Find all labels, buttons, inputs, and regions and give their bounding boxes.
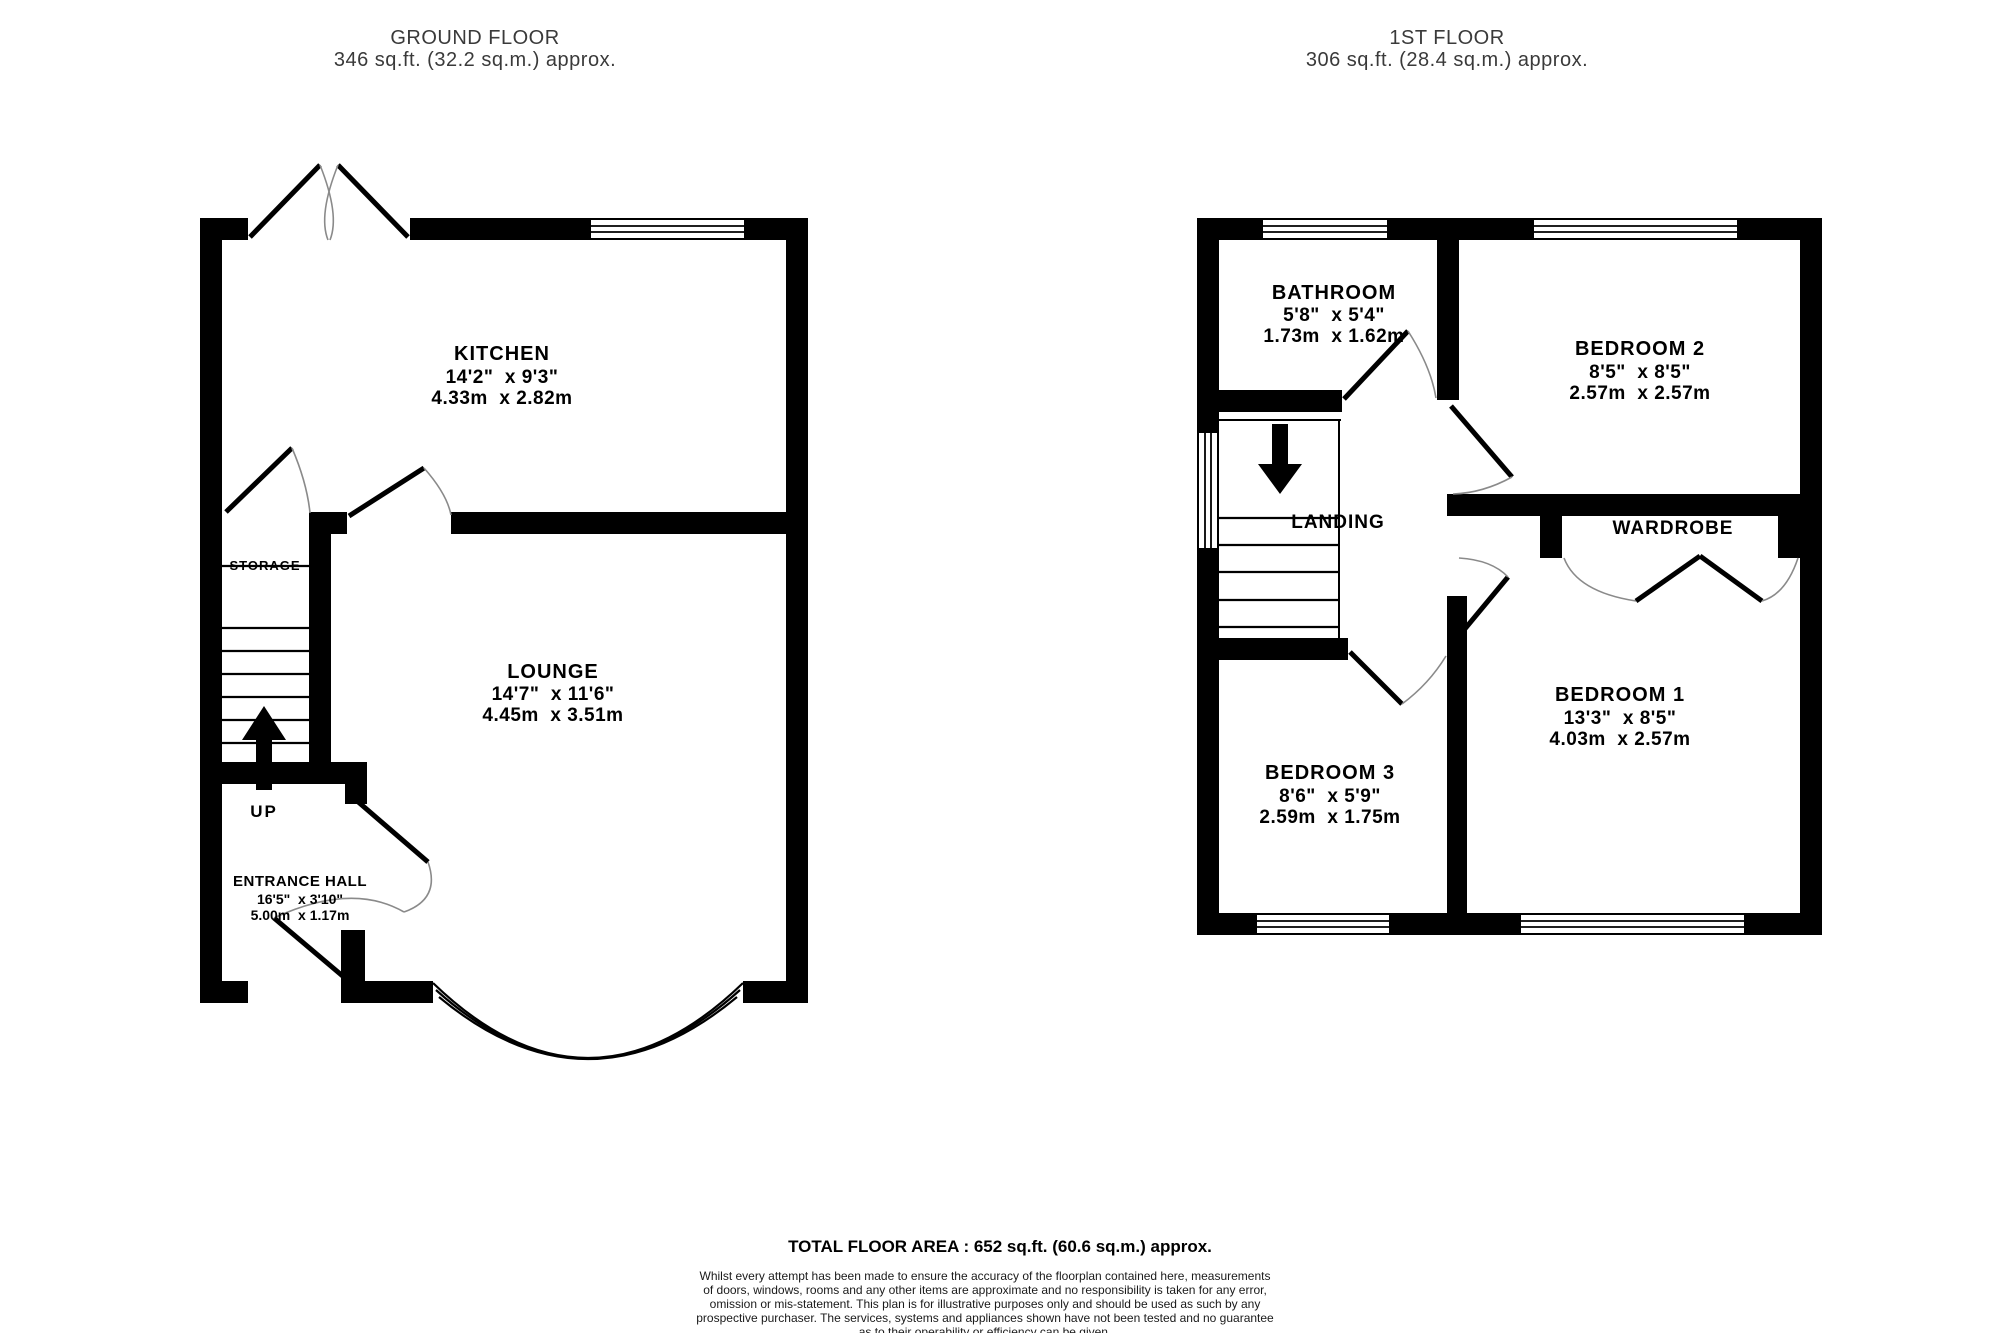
- bedroom3-metric: 2.59m x 1.75m: [1259, 807, 1400, 828]
- bedroom2-window: [1533, 219, 1738, 239]
- lounge-door: [356, 800, 431, 912]
- disclaimer-line-3: omission or mis-statement. This plan is …: [710, 1297, 1261, 1311]
- lounge-name: LOUNGE: [507, 661, 599, 683]
- bedroom3-name: BEDROOM 3: [1265, 762, 1395, 784]
- storage-label: STORAGE: [229, 558, 300, 573]
- kitchen-name: KITCHEN: [454, 343, 550, 365]
- bedroom3-label: BEDROOM 3 8'6" x 5'9" 2.59m x 1.75m: [1259, 762, 1400, 828]
- disclaimer-line-5: as to their operability or efficiency ca…: [859, 1325, 1112, 1333]
- ground-floor-area: 346 sq.ft. (32.2 sq.m.) approx.: [334, 49, 616, 71]
- disclaimer-line-4: prospective purchaser. The services, sys…: [696, 1311, 1274, 1325]
- kitchen-imperial: 14'2" x 9'3": [446, 367, 559, 388]
- bedroom1-metric: 4.03m x 2.57m: [1549, 729, 1690, 750]
- bedroom2-name: BEDROOM 2: [1575, 338, 1705, 360]
- disclaimer-line-1: Whilst every attempt has been made to en…: [700, 1269, 1271, 1283]
- bedroom3-imperial: 8'6" x 5'9": [1279, 786, 1381, 807]
- wardrobe-doors: [1564, 556, 1798, 601]
- hall-kitchen-door: [226, 448, 310, 513]
- first-floor-header: 1ST FLOOR 306 sq.ft. (28.4 sq.m.) approx…: [1306, 27, 1588, 71]
- kitchen-metric: 4.33m x 2.82m: [431, 388, 572, 409]
- bay-window: [433, 983, 743, 1059]
- ground-floor-header: GROUND FLOOR 346 sq.ft. (32.2 sq.m.) app…: [334, 27, 616, 71]
- lounge-label: LOUNGE 14'7" x 11'6" 4.45m x 3.51m: [482, 661, 623, 726]
- lounge-metric: 4.45m x 3.51m: [482, 705, 623, 726]
- bathroom-metric: 1.73m x 1.62m: [1263, 326, 1404, 347]
- bedroom1-label: BEDROOM 1 13'3" x 8'5" 4.03m x 2.57m: [1549, 684, 1690, 750]
- landing-window: [1198, 432, 1218, 549]
- lounge-imperial: 14'7" x 11'6": [492, 684, 615, 705]
- bedroom1-name: BEDROOM 1: [1555, 684, 1685, 706]
- bathroom-window: [1262, 219, 1388, 239]
- footer: TOTAL FLOOR AREA : 652 sq.ft. (60.6 sq.m…: [696, 1237, 1274, 1333]
- first-floor-stairs: [1219, 420, 1341, 648]
- total-floor-area: TOTAL FLOOR AREA : 652 sq.ft. (60.6 sq.m…: [788, 1237, 1212, 1256]
- floorplan-drawing: GROUND FLOOR 346 sq.ft. (32.2 sq.m.) app…: [0, 0, 2000, 1333]
- stairs-up-label: UP: [250, 802, 278, 821]
- wardrobe-label: WARDROBE: [1613, 518, 1734, 539]
- french-doors: [250, 165, 408, 240]
- landing-label: LANDING: [1291, 512, 1385, 533]
- bedroom3-door: [1350, 652, 1446, 704]
- bedroom2-metric: 2.57m x 2.57m: [1569, 383, 1710, 404]
- kitchen-label: KITCHEN 14'2" x 9'3" 4.33m x 2.82m: [431, 343, 572, 409]
- bedroom2-door: [1451, 406, 1512, 494]
- down-arrow-icon: [1258, 424, 1302, 494]
- ground-floor-plan: KITCHEN 14'2" x 9'3" 4.33m x 2.82m LOUNG…: [200, 165, 808, 1059]
- bedroom1-window: [1520, 914, 1745, 934]
- bathroom-imperial: 5'8" x 5'4": [1283, 305, 1385, 326]
- entrance-hall-imperial: 16'5" x 3'10": [257, 891, 343, 907]
- kitchen-lounge-door: [349, 468, 451, 516]
- bedroom1-imperial: 13'3" x 8'5": [1564, 708, 1677, 729]
- first-floor-plan: BATHROOM 5'8" x 5'4" 1.73m x 1.62m BEDRO…: [1197, 218, 1822, 935]
- ground-floor-stairs: [222, 566, 309, 790]
- first-floor-area: 306 sq.ft. (28.4 sq.m.) approx.: [1306, 49, 1588, 71]
- entrance-hall-metric: 5.00m x 1.17m: [251, 907, 350, 923]
- bedroom3-window: [1256, 914, 1390, 934]
- disclaimer-line-2: of doors, windows, rooms and any other i…: [703, 1283, 1267, 1297]
- bathroom-name: BATHROOM: [1272, 282, 1396, 304]
- floorplan-page: GROUND FLOOR 346 sq.ft. (32.2 sq.m.) app…: [0, 0, 2000, 1333]
- ground-floor-title: GROUND FLOOR: [390, 27, 559, 49]
- first-floor-title: 1ST FLOOR: [1389, 27, 1504, 49]
- bedroom2-imperial: 8'5" x 8'5": [1589, 362, 1691, 383]
- kitchen-window: [590, 219, 745, 239]
- entrance-hall-name: ENTRANCE HALL: [233, 873, 367, 890]
- bedroom2-label: BEDROOM 2 8'5" x 8'5" 2.57m x 2.57m: [1569, 338, 1710, 404]
- bathroom-label: BATHROOM 5'8" x 5'4" 1.73m x 1.62m: [1263, 282, 1404, 347]
